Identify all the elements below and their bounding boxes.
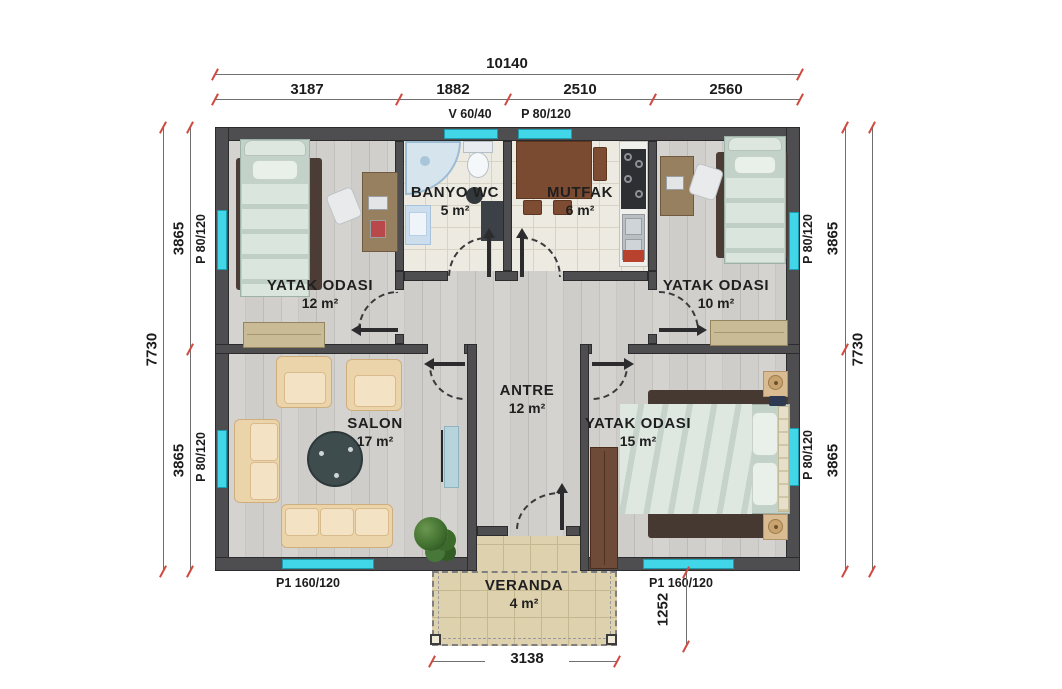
wall-bedroom2-hall-lower <box>648 334 657 344</box>
dim-top-segment-2: 1882 <box>413 81 493 98</box>
bed-pillow <box>734 156 776 174</box>
dim-line-top-total <box>215 74 800 75</box>
dim-left-segment-2: 3865 <box>171 431 188 491</box>
bedroom2-door-leaf <box>659 328 697 332</box>
dining-chair <box>523 200 542 215</box>
dim-top-segment-4: 2560 <box>686 81 766 98</box>
armchair-cushion <box>284 372 326 404</box>
window-salon-bottom <box>282 559 374 569</box>
sink-basin <box>625 218 642 235</box>
dim-top-segment-1: 3187 <box>267 81 347 98</box>
dim-right-segment-2: 3865 <box>825 431 842 491</box>
dim-tick <box>186 565 194 577</box>
sofa-cushion <box>355 508 389 536</box>
dim-tick <box>868 565 876 577</box>
wall-salon-hall <box>467 344 477 571</box>
sofa-cushion <box>250 423 278 461</box>
desk-monitor <box>666 176 684 190</box>
tv-screen-edge <box>441 430 443 482</box>
lamp <box>768 375 783 390</box>
window-left-bottom <box>217 430 227 488</box>
bed-headboard <box>728 137 782 151</box>
window-right-top <box>789 212 799 270</box>
kitchen-door-arrow <box>516 228 528 238</box>
veranda-post <box>606 634 617 645</box>
alarm-clock <box>769 396 786 406</box>
floor-plan-canvas: YATAK ODASI 12 m² BANYO WC 5 m² MUTFAK 6… <box>0 0 1062 689</box>
label-left-bottom-window: P 80/120 <box>194 422 208 492</box>
stove-burner <box>635 190 643 198</box>
wall-bathroom-bottom <box>404 271 448 281</box>
desk <box>362 172 398 252</box>
wall-bath-kitchen-doorpost <box>495 271 518 281</box>
dim-top-total: 10140 <box>455 55 559 72</box>
bedroom2-door-arrow <box>697 324 707 336</box>
bed-headboard <box>778 406 789 512</box>
tv-unit <box>444 426 459 488</box>
dim-tick <box>841 565 849 577</box>
bed-duvet <box>726 178 784 262</box>
salon-door-arrow <box>424 358 434 370</box>
bedroom3-door-arrow <box>624 358 634 370</box>
potted-plant <box>414 517 448 551</box>
bedroom3-door-leaf <box>592 362 624 366</box>
wall-entry-left <box>477 526 508 536</box>
desk-book <box>370 220 386 238</box>
shower-drain <box>420 156 430 166</box>
entry-tile-floor <box>477 536 580 571</box>
label-bath-window: V 60/40 <box>430 107 510 121</box>
sideboard <box>243 322 325 348</box>
dim-veranda-width: 3138 <box>485 650 569 667</box>
bed-headboard <box>244 140 306 156</box>
sofa-cushion <box>250 462 278 500</box>
sofa-cushion <box>285 508 319 536</box>
dim-right-total: 7730 <box>850 320 867 380</box>
veranda-post <box>430 634 441 645</box>
bed-pillow <box>752 412 778 456</box>
table-dot <box>319 451 324 456</box>
kitchen-door-leaf <box>520 237 524 277</box>
lamp <box>768 519 783 534</box>
bed-duvet <box>242 184 308 296</box>
wall-kitchen-bedroom2 <box>648 141 657 271</box>
bed-pillow <box>752 462 778 506</box>
label-kitchen-window: P 80/120 <box>506 107 586 121</box>
dim-tick <box>682 640 690 652</box>
coffee-table <box>307 431 363 487</box>
dining-chair <box>593 147 607 181</box>
window-bathroom-top <box>444 129 498 139</box>
dim-left-total: 7730 <box>144 320 161 380</box>
dim-top-segment-3: 2510 <box>540 81 620 98</box>
kitchen-towel <box>623 250 644 262</box>
sideboard <box>710 320 788 346</box>
wall-bathroom-kitchen <box>503 141 512 271</box>
toilet <box>467 152 489 178</box>
window-right-bottom <box>789 428 799 486</box>
dining-chair <box>553 200 572 215</box>
wall-bedroom1-hall-upper <box>395 271 404 290</box>
bedroom1-door-leaf <box>360 328 398 332</box>
sofa-cushion <box>320 508 354 536</box>
wall-bedroom2-hall-upper <box>648 271 657 290</box>
veranda-inner-dashed-line <box>438 571 611 639</box>
wall-hall-bedroom3 <box>580 344 589 571</box>
dim-tick <box>159 565 167 577</box>
salon-door-leaf <box>433 362 465 366</box>
bathroom-door-leaf <box>487 237 491 277</box>
wall-entry-right <box>566 526 580 536</box>
bedroom1-door-arrow <box>351 324 361 336</box>
dim-line-left-total <box>163 127 164 571</box>
label-right-bottom-window: P 80/120 <box>801 420 815 490</box>
bathroom-door-arrow <box>483 228 495 238</box>
dim-veranda-depth: 1252 <box>655 580 672 640</box>
stove-burner <box>624 175 632 183</box>
dim-right-segment-1: 3865 <box>825 209 842 269</box>
dim-line-right-total <box>872 127 873 571</box>
table-dot <box>348 447 353 452</box>
bed-pillow <box>252 160 298 180</box>
window-kitchen-top <box>518 129 572 139</box>
entrance-door-arrow <box>556 483 568 493</box>
wall-kitchen-bottom <box>563 271 648 281</box>
label-right-top-window: P 80/120 <box>801 204 815 274</box>
label-left-top-window: P 80/120 <box>194 204 208 274</box>
window-left-top <box>217 210 227 270</box>
bed-duvet <box>620 404 752 514</box>
stove-burner <box>624 153 632 161</box>
entrance-door-leaf <box>560 492 564 530</box>
wardrobe <box>590 447 618 569</box>
stove-burner <box>635 160 643 168</box>
table-dot <box>334 473 339 478</box>
armchair-cushion <box>354 375 396 407</box>
washbasin-bowl <box>409 212 427 236</box>
dim-left-segment-1: 3865 <box>171 209 188 269</box>
dining-table <box>516 141 592 199</box>
wall-bedroom1-hall-lower <box>395 334 404 344</box>
dim-line-veranda-depth <box>686 572 687 646</box>
desk-monitor <box>368 196 388 210</box>
label-bottom-left-window: P1 160/120 <box>276 576 396 590</box>
